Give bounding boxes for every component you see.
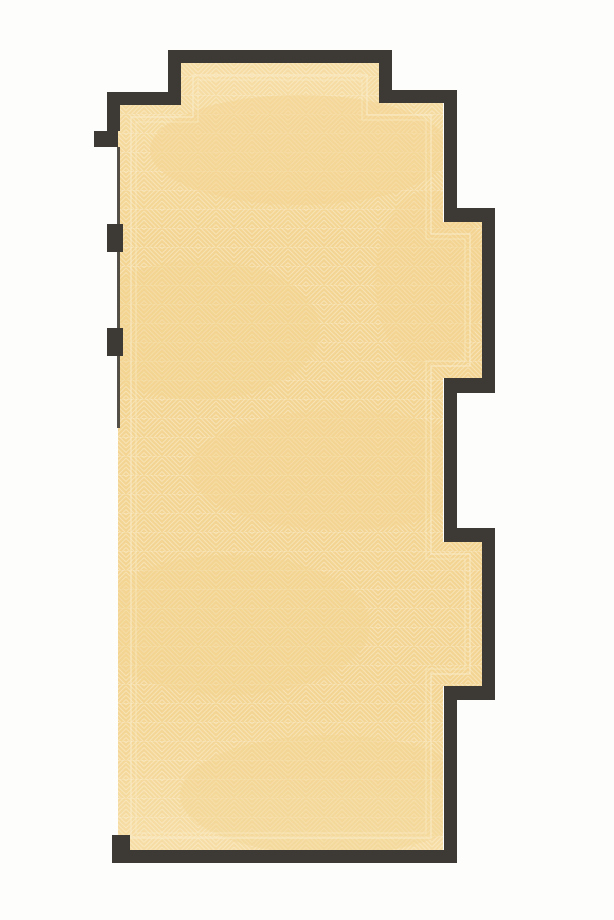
window-wall-line: [117, 147, 120, 428]
wall-segment-bottom-left-end: [112, 835, 130, 852]
pattern-fade-spot: [150, 95, 450, 205]
wall-segment-bay1-right: [482, 208, 495, 393]
wall-segment-right-lower: [444, 686, 457, 863]
left-pier-2: [107, 328, 123, 356]
pattern-fade-spot: [180, 735, 480, 855]
wall-segment-right-upper: [444, 90, 457, 222]
left-pier-1: [107, 224, 123, 252]
wall-segment-left-notch: [94, 131, 118, 147]
wall-segment-bay2-right: [482, 528, 495, 700]
wall-segment-bottom: [112, 850, 457, 863]
pattern-fade-spot: [90, 555, 370, 695]
wall-segment-top-box-top: [168, 50, 392, 63]
wall-segment-left-upper: [107, 92, 120, 131]
wall-segment-right-mid: [444, 378, 457, 542]
scanned-drawing-page: [0, 0, 614, 920]
floor-plan-drawing: [0, 0, 614, 920]
